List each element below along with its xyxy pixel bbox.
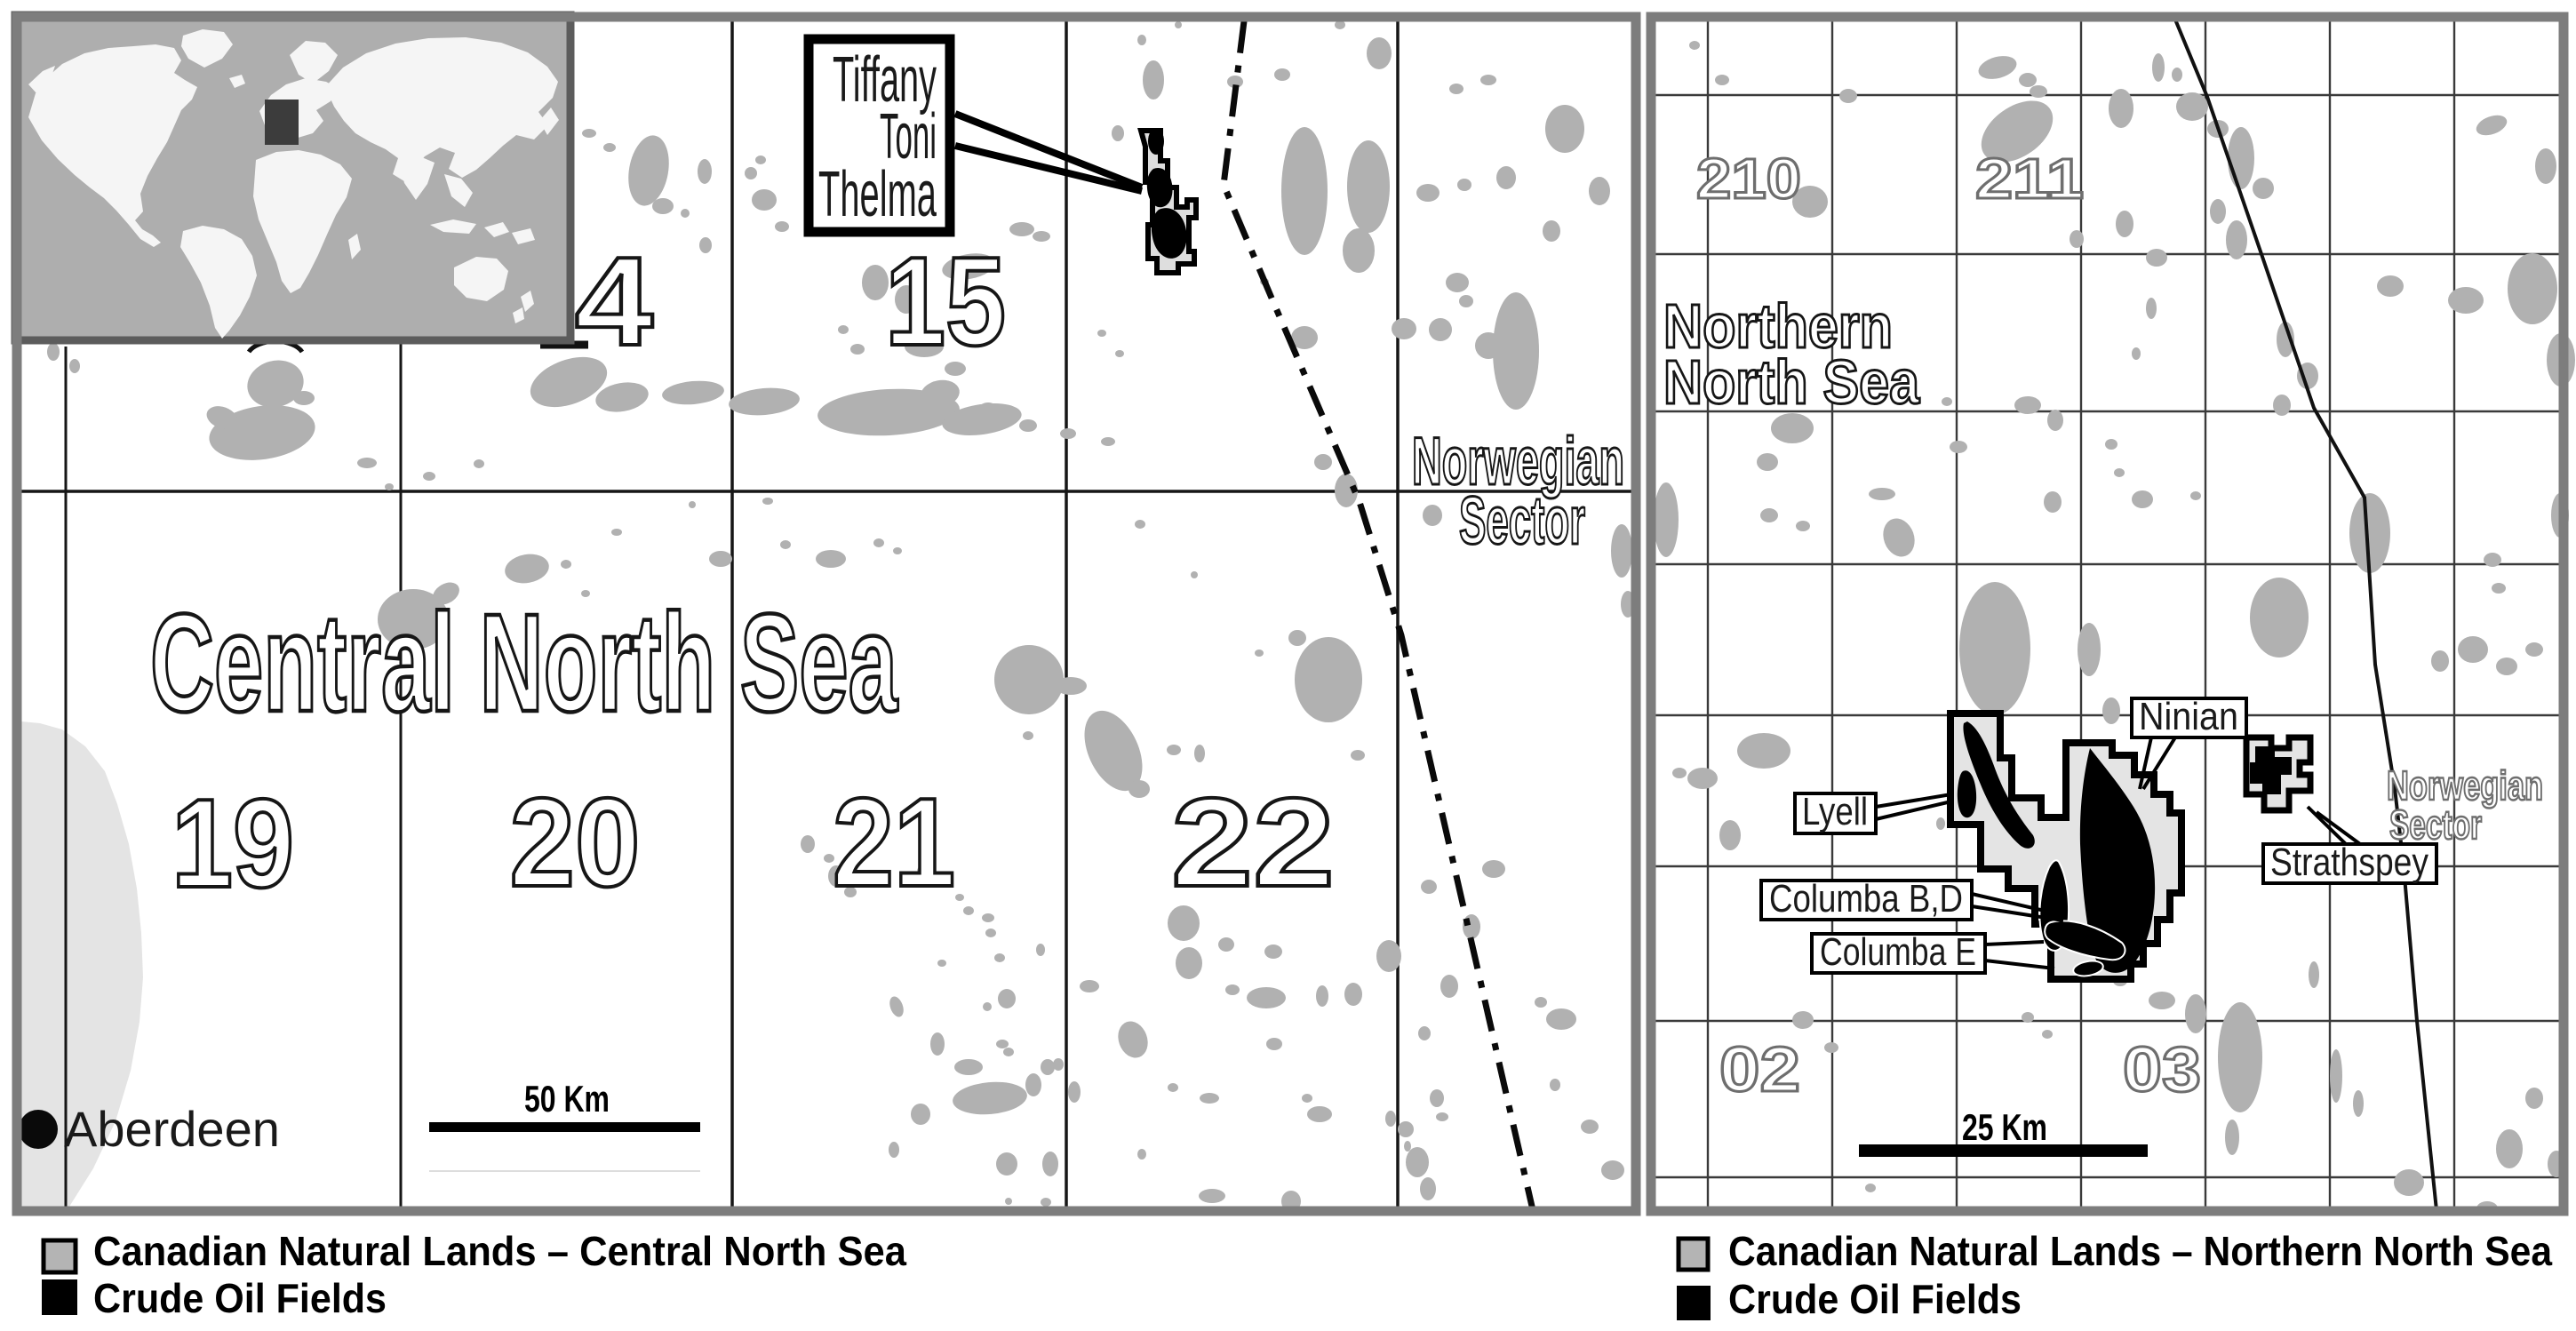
svg-text:North Sea: North Sea xyxy=(1663,347,1920,417)
svg-text:Canadian Natural Lands – Centr: Canadian Natural Lands – Central North S… xyxy=(93,1228,906,1274)
svg-text:Sector: Sector xyxy=(1459,483,1585,559)
svg-text:Canadian Natural Lands – North: Canadian Natural Lands – Northern North … xyxy=(1728,1228,2552,1274)
svg-text:19: 19 xyxy=(171,773,294,914)
svg-text:03: 03 xyxy=(2123,1035,2201,1105)
svg-text:Columba E: Columba E xyxy=(1820,930,1976,974)
svg-text:25 Km: 25 Km xyxy=(1962,1106,2047,1148)
svg-text:Central North Sea: Central North Sea xyxy=(150,586,898,741)
svg-text:20: 20 xyxy=(510,772,641,913)
svg-text:15: 15 xyxy=(885,231,1006,372)
svg-text:Aberdeen: Aberdeen xyxy=(64,1101,280,1157)
svg-text:Ninian: Ninian xyxy=(2139,695,2238,738)
svg-text:22: 22 xyxy=(1171,772,1335,913)
svg-text:Crude Oil Fields: Crude Oil Fields xyxy=(1728,1276,2022,1322)
svg-text:50 Km: 50 Km xyxy=(524,1078,610,1120)
svg-text:Columba B,D: Columba B,D xyxy=(1769,877,1963,921)
svg-text:4: 4 xyxy=(575,231,653,372)
svg-text:Lyell: Lyell xyxy=(1802,790,1868,833)
svg-text:02: 02 xyxy=(1719,1035,1800,1105)
svg-text:210: 210 xyxy=(1696,147,1801,211)
svg-text:Crude Oil Fields: Crude Oil Fields xyxy=(93,1275,387,1321)
svg-text:211: 211 xyxy=(1975,147,2084,211)
svg-text:Strathspey: Strathspey xyxy=(2270,841,2428,884)
svg-text:21: 21 xyxy=(833,772,955,913)
svg-text:Thelma: Thelma xyxy=(818,159,937,230)
